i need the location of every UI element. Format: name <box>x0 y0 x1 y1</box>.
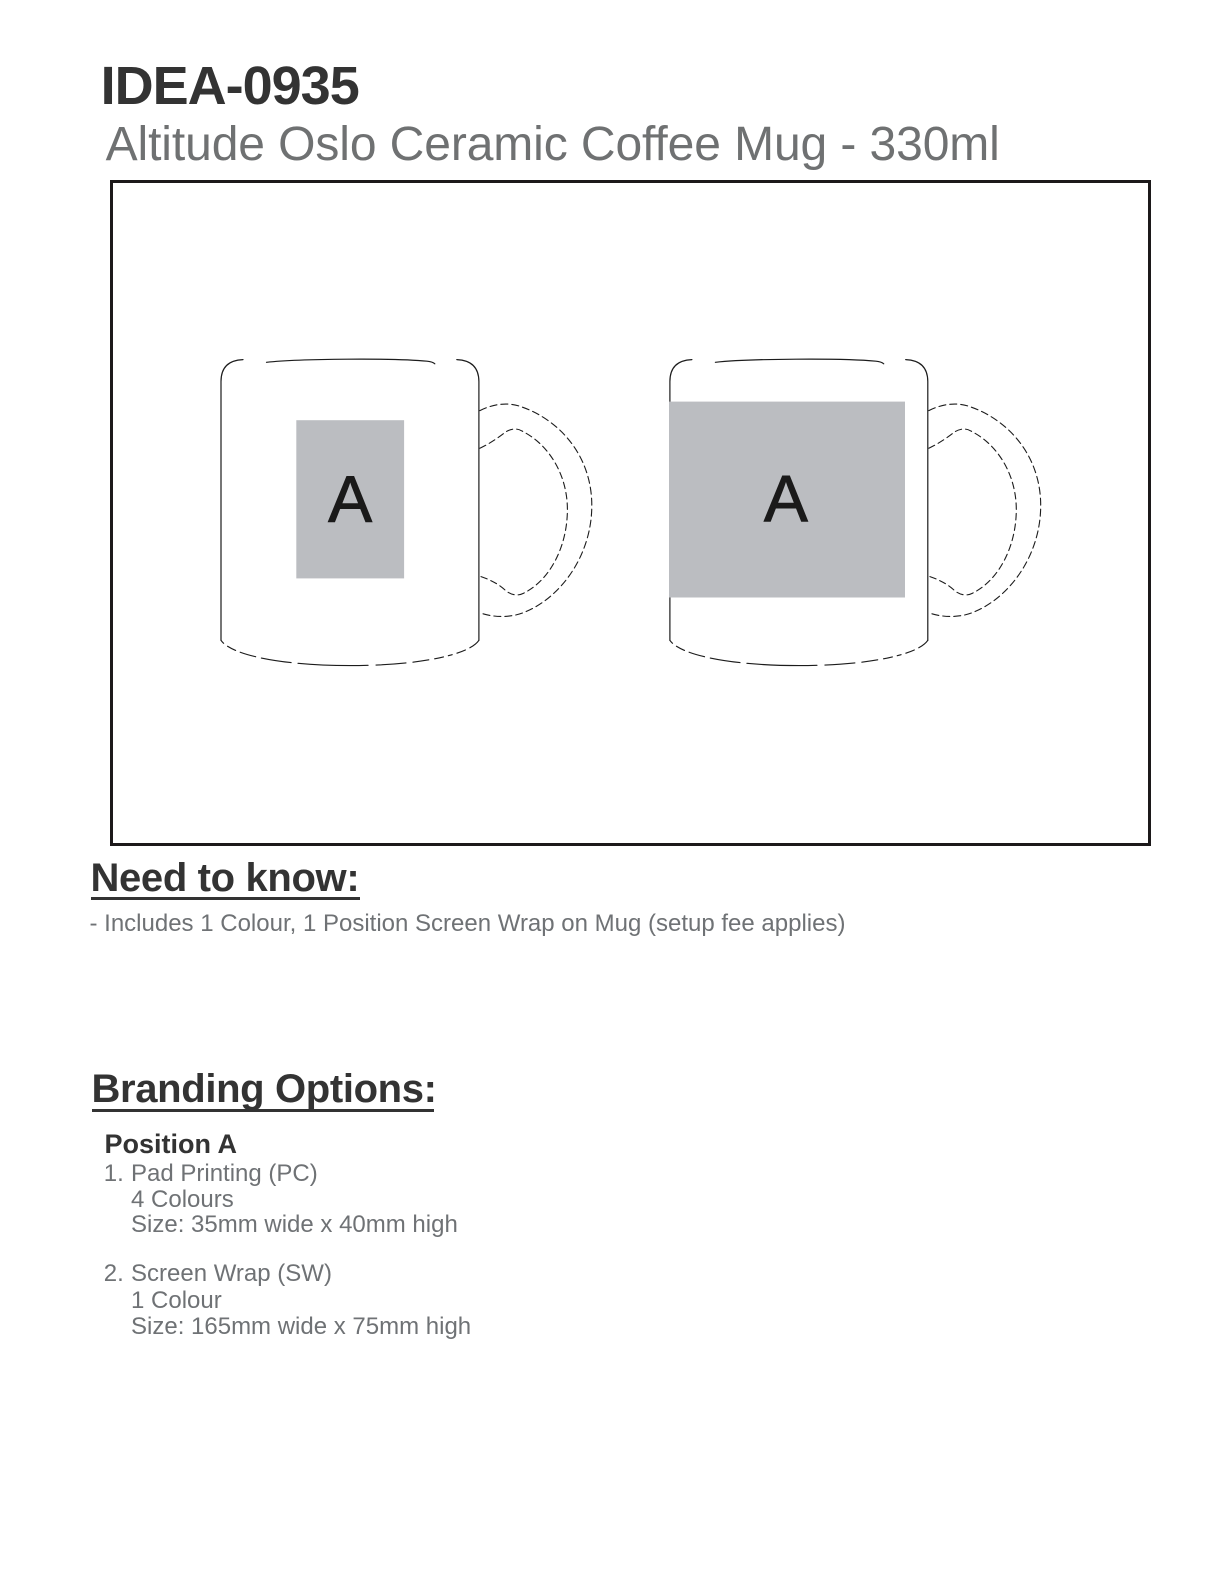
svg-text:A: A <box>764 462 808 536</box>
svg-text:A: A <box>328 462 372 536</box>
